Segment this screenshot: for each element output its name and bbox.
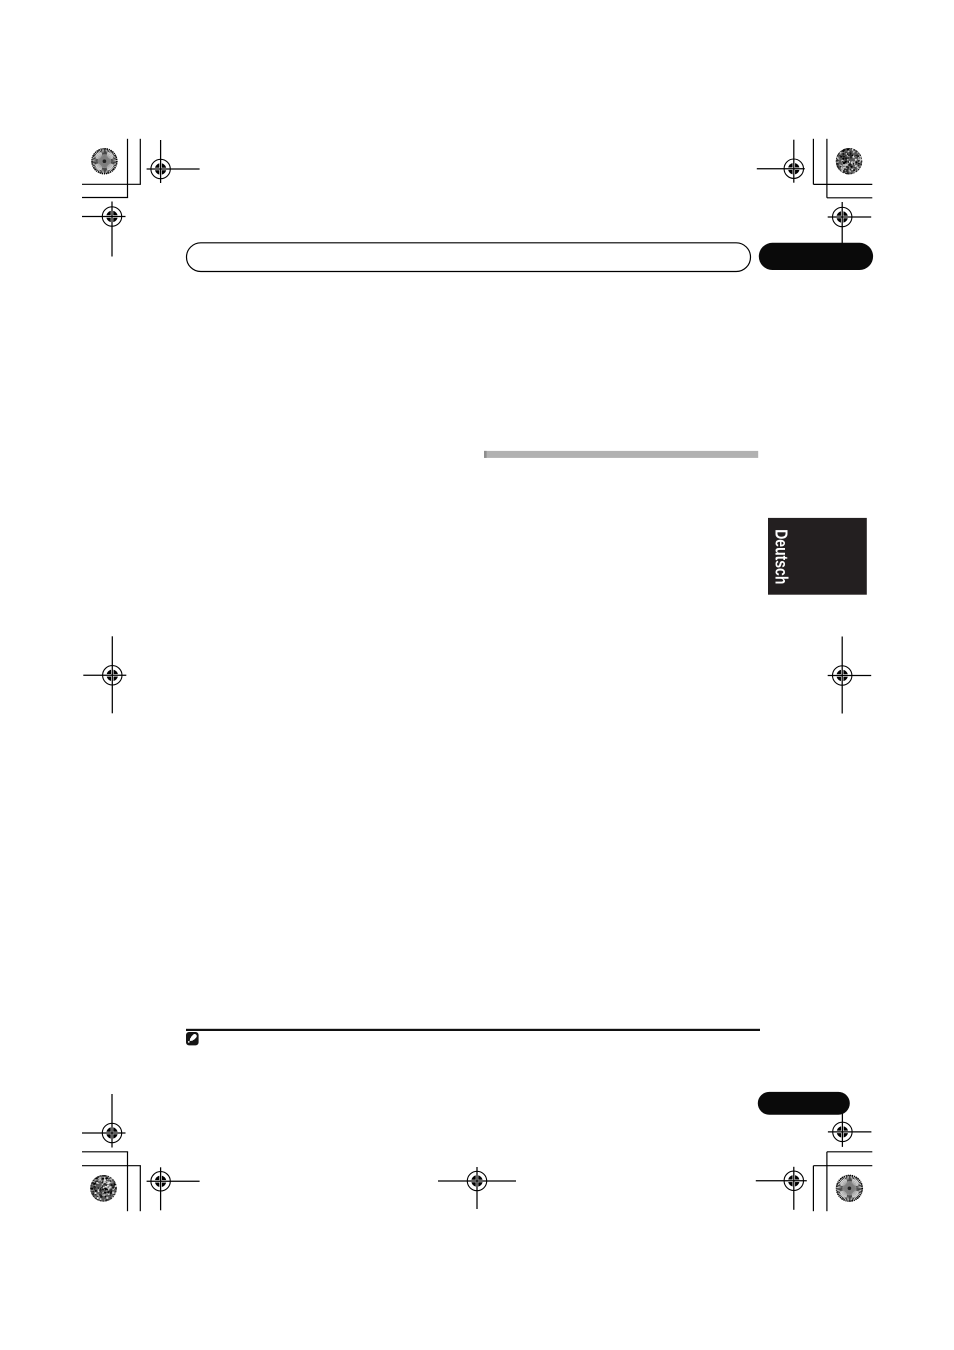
svg-text:Deutsch: Deutsch xyxy=(771,529,790,584)
